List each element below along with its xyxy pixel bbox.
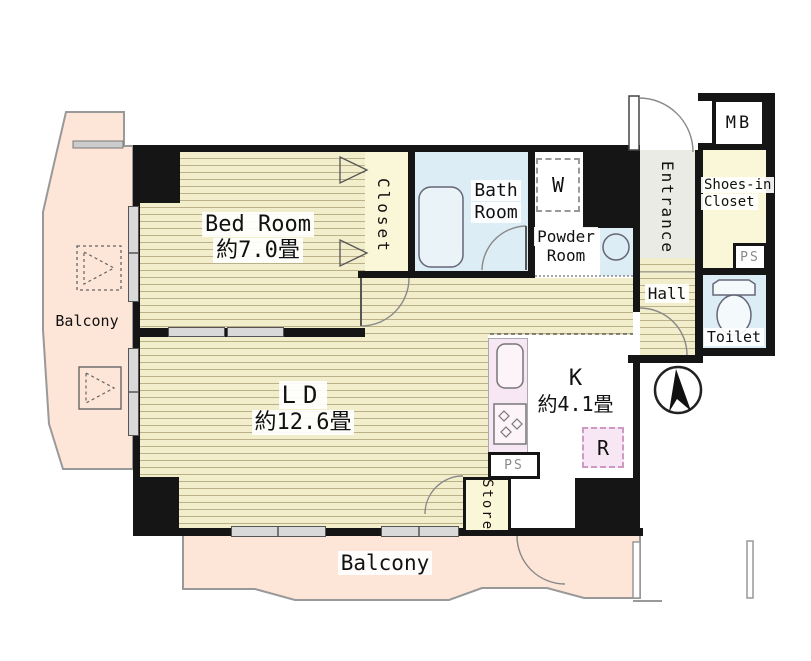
balcony-bottom-label: Balcony — [305, 551, 465, 576]
bath-label: Bath Room — [460, 180, 532, 223]
pipe-space-lower: PS — [488, 452, 540, 479]
balcony-partition — [747, 541, 753, 598]
balcony-left-label: Balcony — [49, 312, 125, 330]
sliding-door-panel — [168, 327, 225, 337]
wall-segment — [628, 355, 703, 363]
washer-space: W — [536, 158, 580, 212]
toilet-name: Toilet — [704, 328, 764, 346]
wall-segment — [633, 152, 640, 312]
washer-label: W — [552, 173, 564, 197]
kitchen-name: K — [566, 366, 585, 391]
closet-name: Closet — [374, 178, 393, 254]
pipe-space-lower-label: PS — [504, 458, 524, 473]
bath-name: Bath Room — [471, 180, 520, 223]
kitchen-size: 約4.1畳 — [534, 392, 616, 416]
toilet-label: Toilet — [702, 328, 766, 346]
balcony-left-name: Balcony — [55, 312, 118, 330]
wall-segment — [695, 348, 775, 356]
refrigerator-space: R — [582, 427, 624, 468]
hall-label: Hall — [642, 284, 692, 303]
window — [381, 526, 459, 537]
window — [231, 526, 326, 537]
entrance-label: Entrance — [658, 158, 677, 258]
wall-segment — [766, 93, 775, 356]
wall-block — [575, 478, 635, 535]
wall-block — [133, 477, 179, 535]
meter-box-label: MB — [726, 113, 752, 133]
hall-floor — [640, 258, 695, 355]
sliding-door-panel — [227, 327, 284, 337]
wall-segment — [408, 152, 415, 274]
pipe-space-upper: PS — [733, 243, 767, 271]
window — [128, 348, 139, 436]
balcony-bottom-name: Balcony — [338, 551, 433, 575]
living-dining-name: LD — [279, 381, 328, 409]
balcony-left-rail — [73, 141, 123, 148]
living-dining-size: 約12.6畳 — [252, 410, 355, 435]
wall-segment — [133, 145, 640, 152]
bedroom-name: Bed Room — [202, 212, 314, 237]
window — [128, 206, 139, 302]
meter-box: MB — [712, 98, 766, 148]
closet-label: Closet — [374, 168, 393, 263]
powder-name: Powder Room — [534, 227, 598, 265]
corridor-floor — [365, 278, 633, 335]
living-dining-label: LD 約12.6畳 — [193, 381, 413, 437]
pipe-space-upper-label: PS — [740, 250, 760, 265]
store-room: Store — [463, 477, 511, 533]
kitchen-label: K 約4.1畳 — [518, 366, 633, 416]
shoes-closet-name: Shoes-in Closet — [701, 177, 774, 210]
floor-plan: MB PS PS Store W R — [0, 0, 811, 661]
balcony-divider-panel — [633, 542, 640, 598]
store-label: Store — [479, 479, 495, 531]
entrance-name: Entrance — [658, 161, 677, 254]
refrigerator-label: R — [597, 436, 609, 460]
wall-block — [133, 145, 180, 203]
hall-name: Hall — [645, 284, 690, 303]
balcony-left-area — [43, 112, 133, 469]
bedroom-size: 約7.0畳 — [213, 238, 303, 263]
bedroom-label: Bed Room 約7.0畳 — [148, 212, 368, 265]
powder-label: Powder Room — [523, 227, 609, 265]
wall-segment — [358, 271, 535, 278]
wall-block — [583, 152, 640, 228]
shoes-closet-label: Shoes-in Closet — [701, 177, 773, 211]
wall-segment — [633, 355, 640, 535]
